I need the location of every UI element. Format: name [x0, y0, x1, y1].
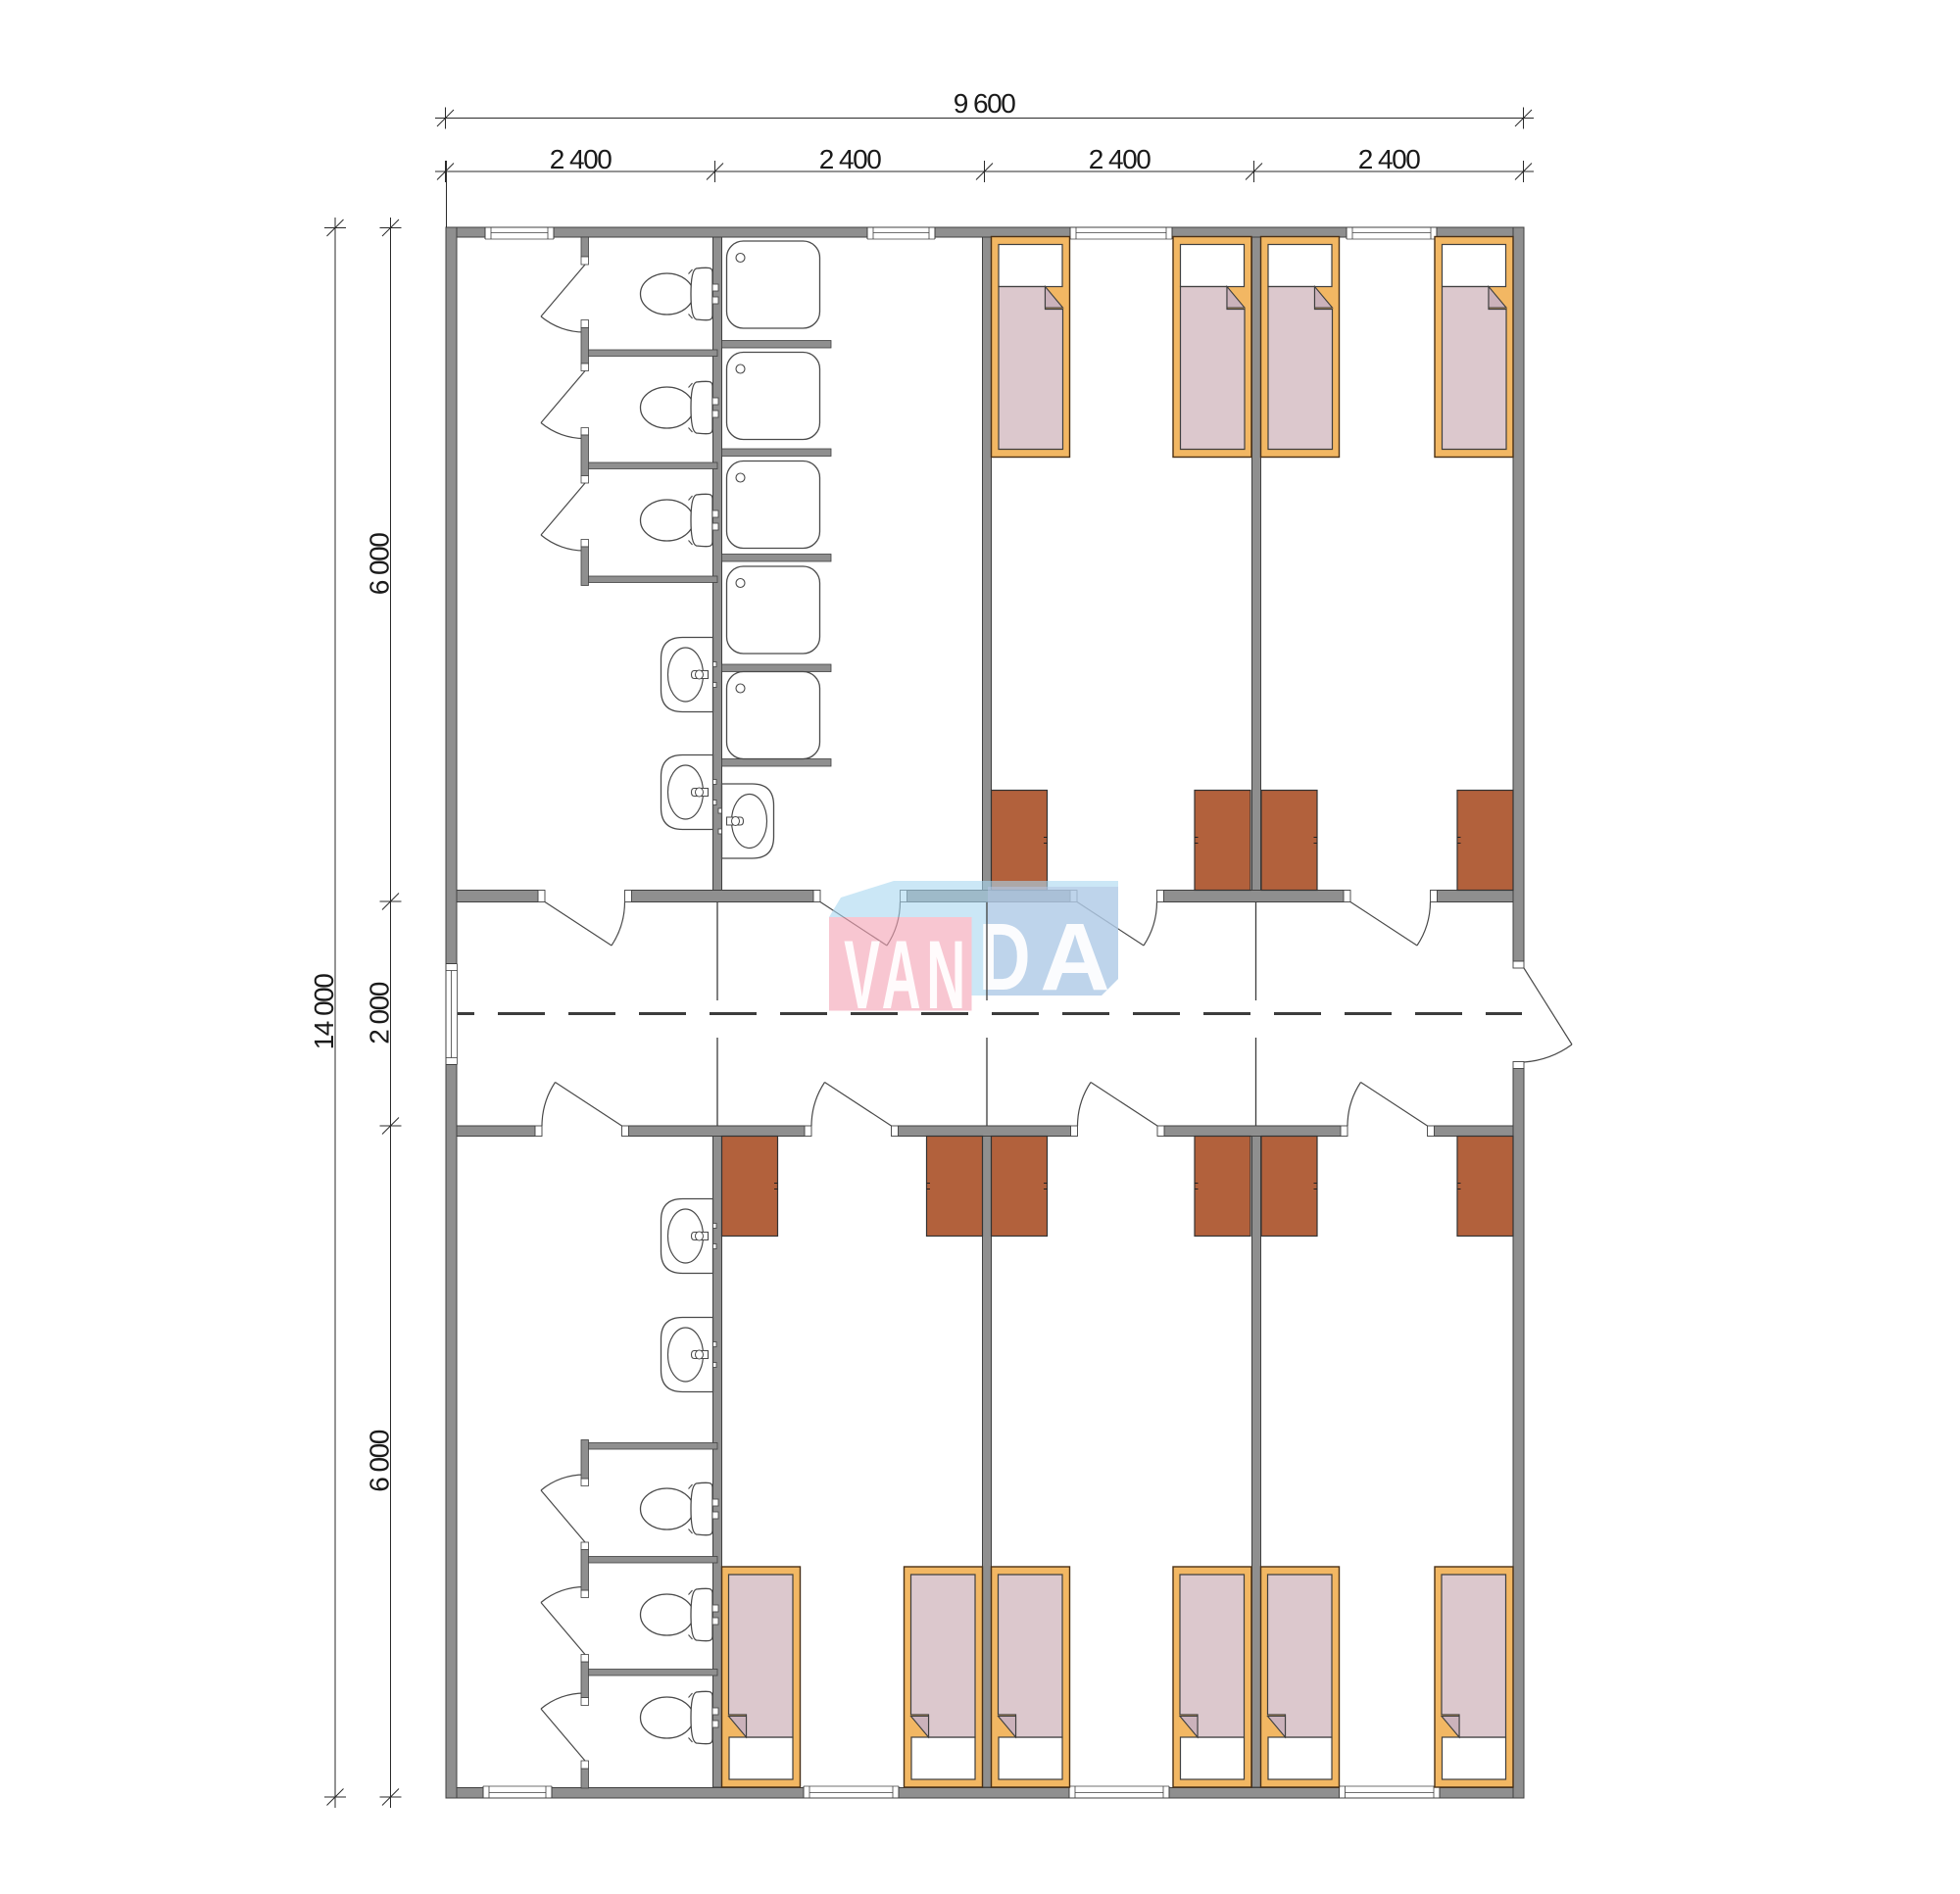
svg-text:A: A — [1040, 903, 1109, 1010]
svg-text:2 400: 2 400 — [819, 144, 881, 174]
svg-text:2 400: 2 400 — [550, 144, 612, 174]
svg-text:6 000: 6 000 — [365, 1430, 395, 1491]
svg-text:2 400: 2 400 — [1358, 144, 1420, 174]
svg-text:6 000: 6 000 — [365, 533, 395, 595]
svg-text:9 600: 9 600 — [954, 88, 1015, 119]
svg-text:2 000: 2 000 — [365, 982, 395, 1044]
svg-text:2 400: 2 400 — [1089, 144, 1151, 174]
svg-text:14 000: 14 000 — [309, 974, 339, 1050]
